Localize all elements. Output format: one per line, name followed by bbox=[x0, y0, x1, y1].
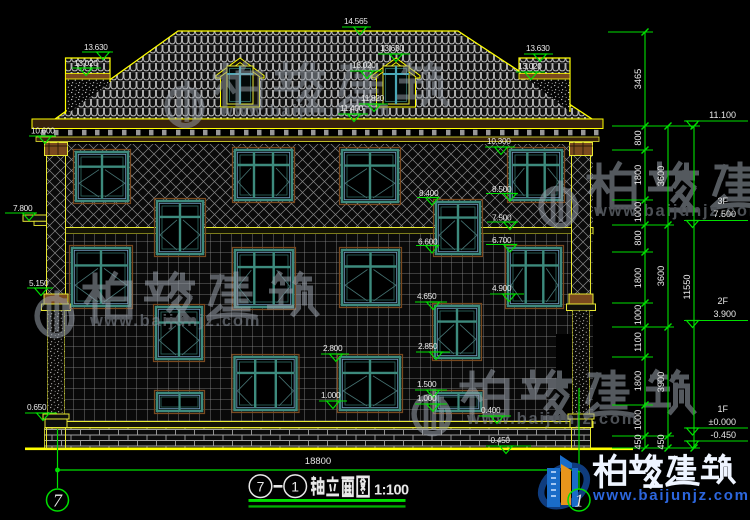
svg-text:7.800: 7.800 bbox=[13, 203, 33, 213]
svg-text:2F: 2F bbox=[717, 296, 728, 306]
svg-text:450: 450 bbox=[633, 434, 643, 449]
svg-text:3900: 3900 bbox=[656, 372, 666, 392]
svg-text:1:100: 1:100 bbox=[374, 483, 409, 499]
svg-text:3.900: 3.900 bbox=[713, 309, 736, 319]
svg-text:11.400: 11.400 bbox=[340, 103, 364, 113]
svg-text:4.650: 4.650 bbox=[417, 291, 437, 301]
svg-text:2.800: 2.800 bbox=[323, 343, 343, 353]
svg-text:1F: 1F bbox=[717, 404, 728, 414]
svg-text:11.100: 11.100 bbox=[709, 110, 736, 120]
svg-text:7: 7 bbox=[53, 491, 63, 511]
svg-text:13.630: 13.630 bbox=[380, 43, 404, 53]
svg-text:5.150: 5.150 bbox=[29, 278, 49, 288]
svg-text:-0.450: -0.450 bbox=[710, 430, 736, 440]
svg-text:13.020: 13.020 bbox=[74, 58, 98, 68]
svg-text:1: 1 bbox=[291, 479, 299, 495]
svg-text:www.baijunjz.com: www.baijunjz.com bbox=[592, 487, 750, 504]
svg-text:18800: 18800 bbox=[305, 456, 331, 467]
svg-text:7.500: 7.500 bbox=[713, 209, 736, 219]
svg-text:3600: 3600 bbox=[656, 166, 666, 186]
svg-text:1000: 1000 bbox=[633, 305, 643, 325]
svg-text:7.500: 7.500 bbox=[492, 213, 512, 223]
svg-text:1100: 1100 bbox=[633, 332, 643, 352]
svg-text:4.900: 4.900 bbox=[492, 283, 512, 293]
svg-text:13.020: 13.020 bbox=[352, 60, 376, 70]
svg-text:www.baijunjz.com: www.baijunjz.com bbox=[219, 102, 391, 120]
svg-text:3600: 3600 bbox=[656, 266, 666, 286]
svg-text:450: 450 bbox=[656, 434, 666, 449]
svg-text:0.650: 0.650 bbox=[27, 402, 47, 412]
svg-text:10.600: 10.600 bbox=[31, 126, 55, 136]
svg-text:800: 800 bbox=[633, 230, 643, 245]
svg-text:1000: 1000 bbox=[633, 410, 643, 430]
svg-text:13.630: 13.630 bbox=[526, 43, 550, 53]
svg-text:14.565: 14.565 bbox=[344, 16, 368, 26]
svg-text:8.400: 8.400 bbox=[419, 188, 439, 198]
svg-text:13.630: 13.630 bbox=[84, 42, 108, 52]
svg-text:1: 1 bbox=[575, 491, 584, 511]
svg-text:1800: 1800 bbox=[633, 268, 643, 288]
svg-text:3465: 3465 bbox=[633, 69, 643, 89]
svg-text:7: 7 bbox=[257, 479, 265, 495]
svg-text:10.300: 10.300 bbox=[487, 136, 511, 146]
svg-text:1800: 1800 bbox=[633, 371, 643, 391]
svg-text:-0.450: -0.450 bbox=[488, 435, 510, 445]
svg-text:2.850: 2.850 bbox=[418, 341, 438, 351]
svg-text:1.000: 1.000 bbox=[417, 393, 437, 403]
svg-text:1.500: 1.500 bbox=[417, 379, 437, 389]
svg-text:1000: 1000 bbox=[633, 202, 643, 222]
svg-text:www.baijunjz.com: www.baijunjz.com bbox=[89, 312, 261, 330]
svg-text:6.700: 6.700 bbox=[492, 235, 512, 245]
svg-text:3F: 3F bbox=[717, 196, 728, 206]
svg-text:1800: 1800 bbox=[633, 165, 643, 185]
svg-text:11.820: 11.820 bbox=[361, 93, 385, 103]
svg-text:800: 800 bbox=[633, 130, 643, 145]
svg-text:1.000: 1.000 bbox=[321, 390, 341, 400]
svg-text:0.400: 0.400 bbox=[481, 405, 501, 415]
svg-text:11550: 11550 bbox=[682, 275, 692, 300]
svg-text:±0.000: ±0.000 bbox=[709, 417, 736, 427]
svg-text:8.500: 8.500 bbox=[492, 184, 512, 194]
svg-text:13.020: 13.020 bbox=[518, 61, 542, 71]
